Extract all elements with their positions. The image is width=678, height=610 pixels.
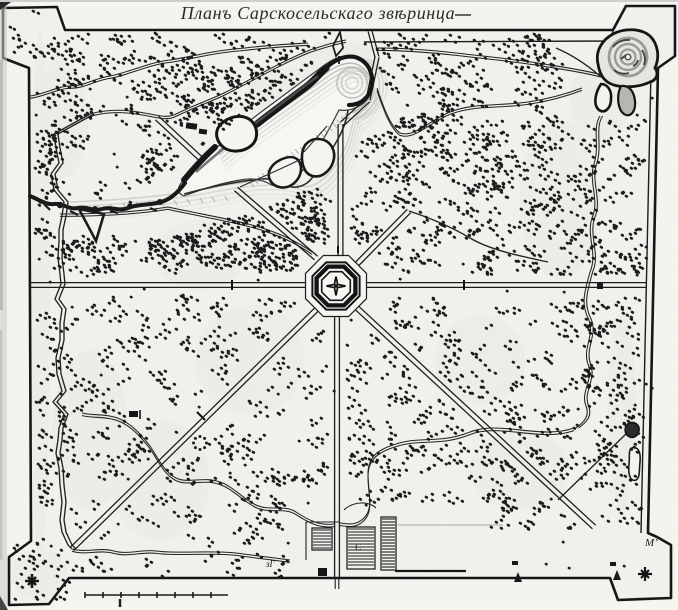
svg-text:зГ: зГ xyxy=(265,559,276,569)
svg-text:С: С xyxy=(355,542,362,552)
svg-text:М’: М’ xyxy=(644,537,658,549)
svg-text:Планъ Сарскосельскаго звѣринца: Планъ Сарскосельскаго звѣринца xyxy=(180,3,456,23)
